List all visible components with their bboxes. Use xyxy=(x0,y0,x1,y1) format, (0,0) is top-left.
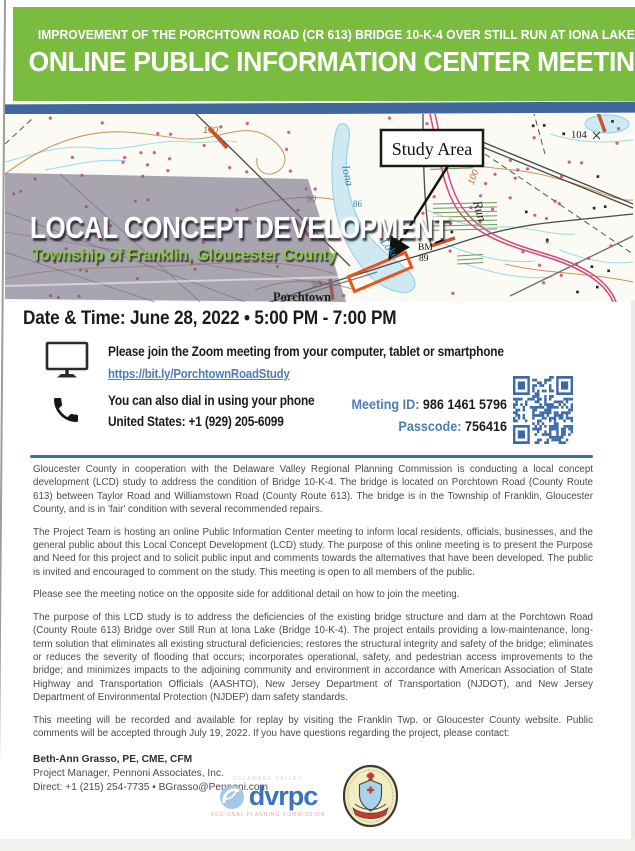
phone-instruction: You can also dial in using your phone xyxy=(108,393,314,408)
gloucester-county-seal xyxy=(342,764,399,828)
map-title: LOCAL CONCEPT DEVELOPMENT xyxy=(30,210,449,246)
dvrpc-globe-icon xyxy=(219,784,245,810)
paragraph-lcd-purpose: The purpose of this LCD study is to addr… xyxy=(33,611,593,704)
paragraph-meeting-purpose: The Project Team is hosting an online Pu… xyxy=(33,526,593,579)
section-divider xyxy=(30,455,593,458)
benchmark-label-89: 89 xyxy=(419,254,429,264)
contour-label-100-right: 100 xyxy=(466,168,481,186)
passcode-label: Passcode: xyxy=(398,418,461,434)
map-subtitle: Township of Franklin, Gloucester County xyxy=(32,245,337,265)
scan-edge-right xyxy=(631,300,635,840)
dvrpc-wordmark: dvrpc xyxy=(249,783,318,810)
contact-name: Beth-Ann Grasso, PE, CME, CFM xyxy=(33,753,593,767)
header-title: ONLINE PUBLIC INFORMATION CENTER MEETING xyxy=(29,46,620,78)
dvrpc-logo: DELAWARE VALLEY dvrpc REGIONAL PLANNING … xyxy=(203,776,333,818)
town-label-porchtown: Porchtown xyxy=(273,290,331,302)
paragraph-meeting-notice: Please see the meeting notice on the opp… xyxy=(33,588,593,601)
meeting-id-label: Meeting ID: xyxy=(351,396,419,412)
body-copy: Gloucester County in cooperation with th… xyxy=(33,463,593,794)
scan-edge-bottom xyxy=(0,839,635,851)
phone-icon xyxy=(50,394,82,426)
meeting-credentials: Meeting ID: 986 1461 5796 Passcode: 7564… xyxy=(295,393,507,437)
zoom-meeting-link[interactable]: https://bit.ly/PorchtownRoadStudy xyxy=(108,366,290,381)
paragraph-study-overview: Gloucester County in cooperation with th… xyxy=(33,463,593,516)
flyer-page: IMPROVEMENT OF THE PORCHTOWN ROAD (CR 61… xyxy=(0,0,635,851)
study-area-label: Study Area xyxy=(392,139,473,159)
meeting-id-value: 986 1461 5796 xyxy=(423,396,507,412)
date-time: Date & Time: June 28, 2022 • 5:00 PM - 7… xyxy=(23,307,396,330)
meeting-info-section: Date & Time: June 28, 2022 • 5:00 PM - 7… xyxy=(0,302,635,455)
dvrpc-logo-bottomline: REGIONAL PLANNING COMMISSION xyxy=(203,812,333,818)
header-subtitle: IMPROVEMENT OF THE PORCHTOWN ROAD (CR 61… xyxy=(38,27,610,42)
topo-map: 100 100 90 98 xyxy=(5,114,635,302)
monitor-icon xyxy=(43,340,91,382)
depth-label-86: 86 xyxy=(353,199,363,209)
passcode-row: Passcode: 756416 xyxy=(316,415,507,437)
meeting-id-row: Meeting ID: 986 1461 5796 xyxy=(316,393,507,415)
flyer-header: IMPROVEMENT OF THE PORCHTOWN ROAD (CR 61… xyxy=(13,7,635,101)
topo-map-graphic: 100 100 90 98 xyxy=(5,114,635,302)
passcode-value: 756416 xyxy=(465,418,507,434)
paragraph-replay-comments: This meeting will be recorded and availa… xyxy=(33,714,593,741)
elevation-label-104: 104 xyxy=(571,130,588,141)
qr-code xyxy=(513,376,573,444)
phone-number: United States: +1 (929) 205-6099 xyxy=(108,414,284,429)
zoom-instruction: Please join the Zoom meeting from your c… xyxy=(108,344,504,359)
